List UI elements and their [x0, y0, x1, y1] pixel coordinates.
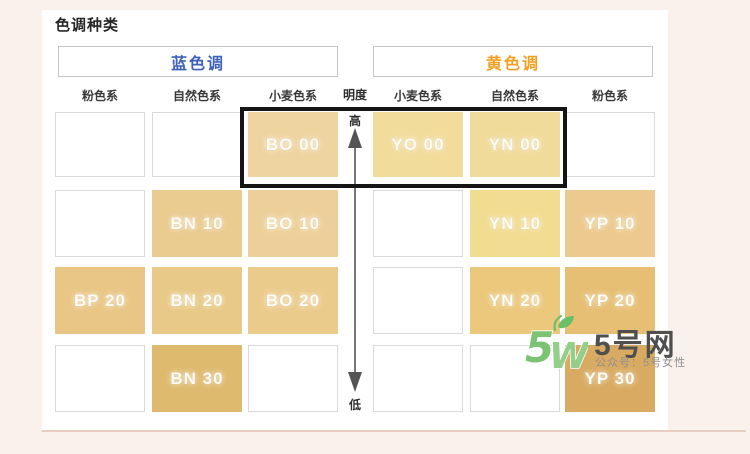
blue-tone-group-label: 蓝色调	[171, 50, 225, 74]
column-header-1: 自然色系	[152, 87, 242, 104]
brightness-axis-title: 明度	[330, 86, 380, 103]
shade-cell-empty	[152, 112, 242, 177]
column-header-0: 粉色系	[55, 87, 145, 104]
shade-cell-bo-20: BO 20	[248, 267, 338, 334]
yellow-tone-group-box: 黄色调	[373, 46, 653, 77]
shade-cell-yp-10: YP 10	[565, 190, 655, 257]
shade-cell-empty	[248, 345, 338, 412]
shade-cell-bo-00: BO 00	[248, 112, 338, 177]
blue-tone-group-box: 蓝色调	[58, 46, 338, 77]
shade-cell-empty	[565, 112, 655, 177]
brightness-low-label: 低	[340, 396, 370, 413]
svg-text:W: W	[549, 336, 588, 374]
shade-cell-yn-10: YN 10	[470, 190, 560, 257]
brightness-arrow-icon	[340, 128, 370, 392]
shade-cell-empty	[373, 267, 463, 334]
shade-cell-empty	[55, 190, 145, 257]
watermark-logo-icon: 5 W	[524, 314, 588, 374]
page-title: 色调种类	[55, 14, 119, 35]
bottom-divider	[42, 430, 746, 432]
watermark-subtitle: 公众号：5号女性	[595, 354, 686, 370]
column-header-5: 粉色系	[565, 87, 655, 104]
tone-chart-page: 色调种类 蓝色调 黄色调 粉色系自然色系小麦色系小麦色系自然色系粉色系 明度 高…	[0, 0, 750, 454]
yellow-tone-group-label: 黄色调	[486, 50, 540, 74]
column-header-2: 小麦色系	[248, 87, 338, 104]
shade-cell-bn-30: BN 30	[152, 345, 242, 412]
shade-cell-bn-10: BN 10	[152, 190, 242, 257]
shade-cell-empty	[55, 112, 145, 177]
shade-cell-empty	[55, 345, 145, 412]
shade-cell-empty	[373, 190, 463, 257]
shade-cell-yn-00: YN 00	[470, 112, 560, 177]
column-header-4: 自然色系	[470, 87, 560, 104]
shade-cell-bo-10: BO 10	[248, 190, 338, 257]
shade-cell-bn-20: BN 20	[152, 267, 242, 334]
shade-cell-bp-20: BP 20	[55, 267, 145, 334]
shade-cell-yo-00: YO 00	[373, 112, 463, 177]
brightness-high-label: 高	[340, 112, 370, 129]
shade-cell-empty	[373, 345, 463, 412]
column-header-3: 小麦色系	[373, 87, 463, 104]
